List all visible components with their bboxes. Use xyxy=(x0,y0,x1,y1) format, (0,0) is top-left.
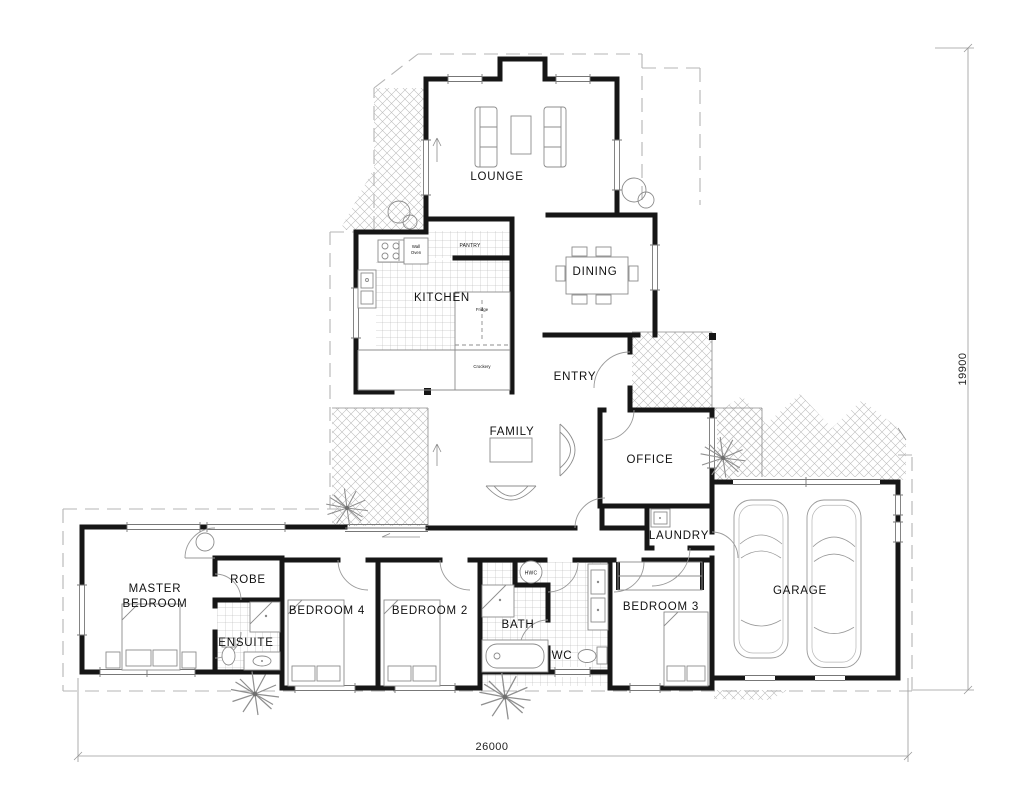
entry-porch-hatch xyxy=(632,332,712,408)
shower-symbol xyxy=(482,585,514,617)
hwc-label: HWC xyxy=(525,571,538,577)
patio-hatch-lounge-west xyxy=(340,88,424,230)
office-door-arc xyxy=(604,410,634,440)
vanity-symbol xyxy=(588,564,608,630)
bedroom2-door-arc xyxy=(440,560,470,590)
bedroom4-door-arc xyxy=(338,560,368,590)
laundry-tub-symbol xyxy=(651,509,670,527)
coffee-table-symbol xyxy=(511,116,531,154)
room-label-entry: ENTRY xyxy=(554,371,597,383)
vanity-symbol xyxy=(244,652,280,670)
dimension-width: 26000 xyxy=(475,741,508,753)
kitchen-sink-symbol xyxy=(358,270,376,308)
front-door-arc xyxy=(594,352,630,388)
family-table-symbol xyxy=(490,438,532,462)
room-label-kitchen: KITCHEN xyxy=(414,292,470,304)
master-door-arc xyxy=(185,528,215,558)
bathtub-symbol xyxy=(482,640,548,672)
floor-plan-drawing: LOUNGE DINING KITCHEN ENTRY FAMILY OFFIC… xyxy=(0,0,1010,801)
floor-plan-page: LOUNGE DINING KITCHEN ENTRY FAMILY OFFIC… xyxy=(0,0,1010,801)
room-label-garage: GARAGE xyxy=(773,585,827,597)
fridge-label: Fridge xyxy=(476,307,489,312)
room-label-bedroom2: BEDROOM 2 xyxy=(392,605,468,617)
room-label-bath: BATH xyxy=(501,619,534,631)
room-label-bedroom3: BEDROOM 3 xyxy=(623,601,699,613)
cooktop-symbol xyxy=(378,240,404,262)
car-symbol xyxy=(807,500,861,667)
room-label-laundry: LAUNDRY xyxy=(649,530,709,542)
palm-tree-icon xyxy=(231,672,279,716)
room-label-wc: WC xyxy=(552,650,573,662)
room-label-robe: ROBE xyxy=(230,574,266,586)
dimension-height: 19900 xyxy=(957,352,969,385)
garage-door xyxy=(733,477,880,487)
room-label-master-1: MASTER xyxy=(129,583,182,595)
bed-symbol-master xyxy=(106,604,196,670)
room-label-master-2: BEDROOM xyxy=(122,598,187,610)
laundry-door-arc xyxy=(652,548,690,586)
bed-symbol xyxy=(664,612,708,686)
car-symbol xyxy=(734,500,788,658)
room-label-bedroom4: BEDROOM 4 xyxy=(289,605,365,617)
post xyxy=(424,388,431,395)
room-label-family: FAMILY xyxy=(490,426,535,438)
pantry-label: PANTRY xyxy=(459,243,480,249)
wall-oven-label-2: Oven xyxy=(411,250,422,255)
room-label-dining: DINING xyxy=(572,266,617,278)
closet-symbol xyxy=(618,562,702,590)
room-label-office: OFFICE xyxy=(627,454,674,466)
porch-post xyxy=(709,333,716,340)
crockery-label: Crockery xyxy=(473,364,491,369)
wall-oven-label-1: Wall xyxy=(412,244,420,249)
driveway-hatch xyxy=(712,394,906,480)
shower-symbol xyxy=(250,602,280,632)
room-label-ensuite: ENSUITE xyxy=(218,637,273,649)
room-label-lounge: LOUNGE xyxy=(470,171,523,183)
